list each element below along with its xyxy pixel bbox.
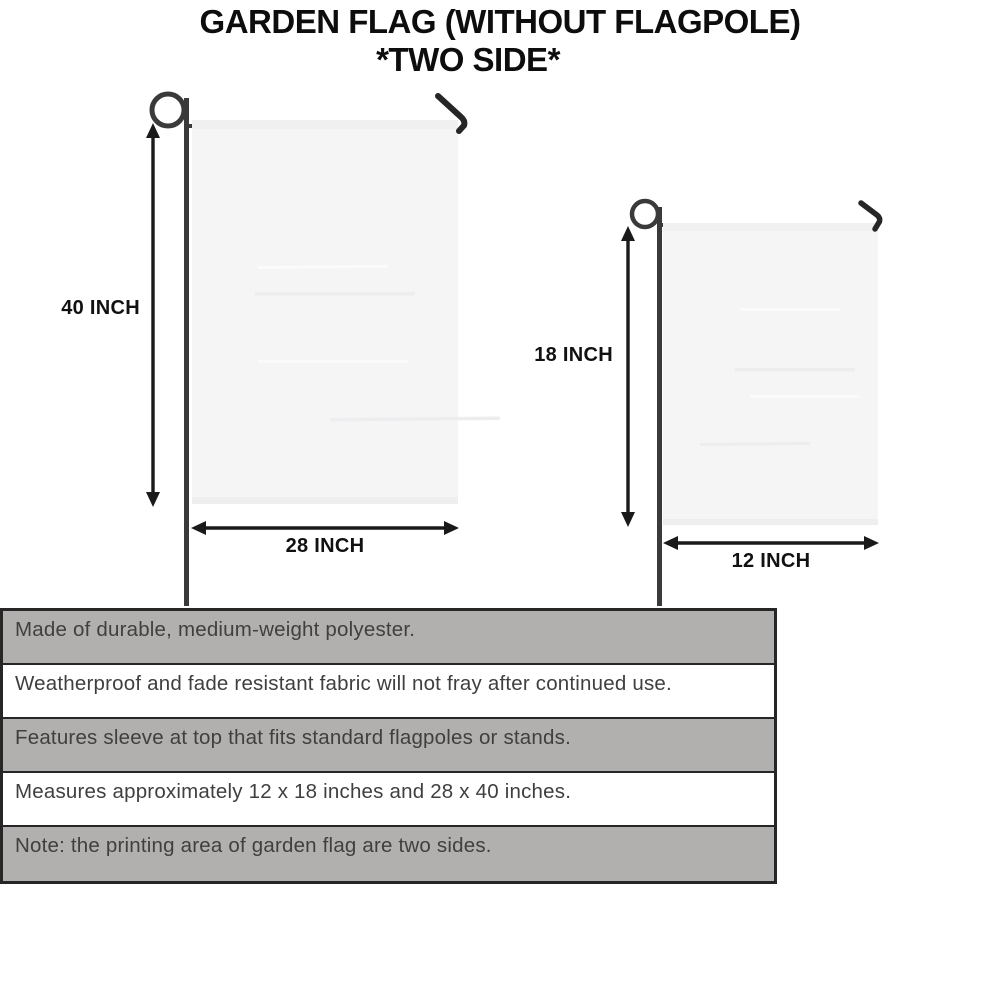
width-arrow-small — [663, 536, 879, 550]
spec-row-weatherproof: Weatherproof and fade resistant fabric w… — [3, 665, 774, 719]
small-flag-group — [621, 201, 880, 606]
flag-hem-large — [192, 497, 458, 504]
flag-sleeve-small — [663, 223, 878, 231]
height-arrow-large — [146, 123, 160, 507]
spec-row-sleeve: Features sleeve at top that fits standar… — [3, 719, 774, 773]
height-arrow-small — [621, 226, 635, 527]
height-label-small: 18 INCH — [513, 344, 613, 367]
width-label-large: 28 INCH — [225, 535, 425, 558]
spec-row-note: Note: the printing area of garden flag a… — [3, 827, 774, 881]
flag-panel-small — [663, 223, 878, 525]
width-arrow-large — [191, 521, 459, 535]
flagpole-loop-large-icon — [152, 94, 184, 126]
spec-row-material: Made of durable, medium-weight polyester… — [3, 611, 774, 665]
flag-sleeve-large — [192, 120, 458, 129]
height-label-large: 40 INCH — [40, 297, 140, 320]
garden-flag-infographic: GARDEN FLAG (WITHOUT FLAGPOLE) *TWO SIDE… — [0, 0, 1000, 1000]
flagpole-loop-small-icon — [632, 201, 658, 227]
width-label-small: 12 INCH — [671, 550, 871, 573]
large-flag-group — [146, 94, 500, 606]
flag-panel-large — [192, 120, 458, 504]
spec-row-measures: Measures approximately 12 x 18 inches an… — [3, 773, 774, 827]
flag-hem-small — [663, 519, 878, 525]
spec-table: Made of durable, medium-weight polyester… — [0, 608, 777, 884]
size-diagram — [0, 0, 1000, 615]
